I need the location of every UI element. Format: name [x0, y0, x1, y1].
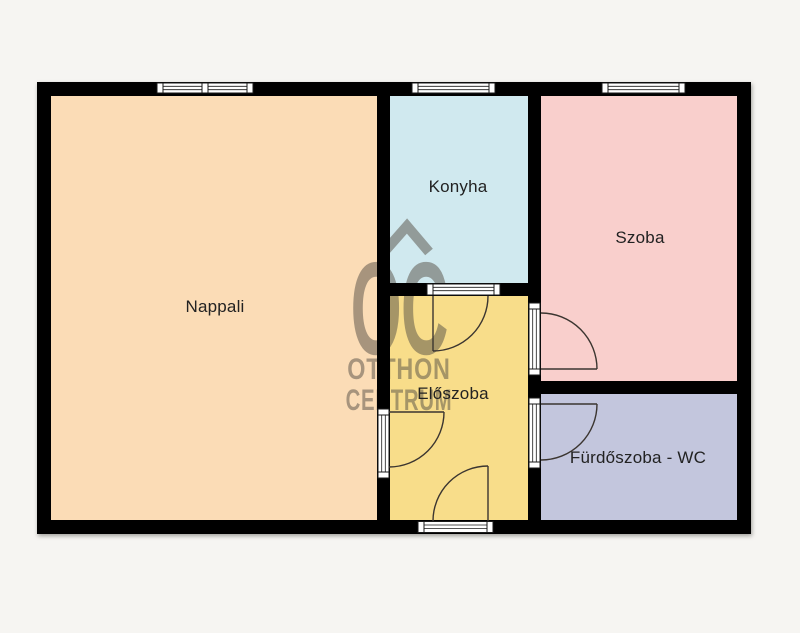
- door-frame-cap: [494, 284, 500, 295]
- door-frame-cap: [378, 409, 389, 415]
- door-frame: [418, 522, 493, 533]
- window-cap: [157, 83, 163, 93]
- door-frame-cap: [529, 369, 540, 375]
- room-label-szoba: Szoba: [615, 228, 664, 248]
- window-cap: [247, 83, 253, 93]
- watermark-line1: OTTHON: [347, 352, 450, 385]
- door-frame: [427, 284, 500, 295]
- room-label-nappali: Nappali: [185, 297, 244, 317]
- room-label-furdoszoba: Fürdőszoba - WC: [570, 448, 706, 468]
- wall-bottom: [37, 520, 751, 534]
- door-frame-cap: [487, 522, 493, 533]
- window-cap: [679, 83, 685, 93]
- door-frame-nappali: [378, 409, 389, 478]
- window-nappali: [157, 83, 253, 93]
- door-frame-cap: [418, 522, 424, 533]
- door-frame-entrance: [418, 522, 493, 533]
- window-divider: [202, 83, 208, 93]
- window-frame: [412, 83, 495, 93]
- window-konyha: [412, 83, 495, 93]
- door-frame: [529, 398, 540, 468]
- window-cap: [412, 83, 418, 93]
- wall-left: [37, 82, 51, 534]
- window-szoba: [602, 83, 685, 93]
- room-label-eloszoba: Előszoba: [417, 384, 489, 404]
- room-label-konyha: Konyha: [429, 177, 488, 197]
- wall-right: [737, 82, 751, 534]
- door-frame-cap: [529, 303, 540, 309]
- windows: [157, 83, 685, 93]
- door-frame-konyha: [427, 284, 500, 295]
- window-cap: [489, 83, 495, 93]
- door-frame: [529, 303, 540, 375]
- window-cap: [602, 83, 608, 93]
- door-frame-furdoszoba: [529, 398, 540, 468]
- door-frame: [378, 409, 389, 478]
- wall-szoba-furdo: [528, 381, 751, 394]
- door-frame-cap: [378, 472, 389, 478]
- floor-plan-drawing: OC OTTHON CENTRUM: [0, 0, 800, 633]
- window-frame: [602, 83, 685, 93]
- floor-plan: OC OTTHON CENTRUM: [0, 0, 800, 633]
- door-frame-cap: [529, 398, 540, 404]
- door-frame-cap: [529, 462, 540, 468]
- door-frame-cap: [427, 284, 433, 295]
- door-frame-szoba: [529, 303, 540, 375]
